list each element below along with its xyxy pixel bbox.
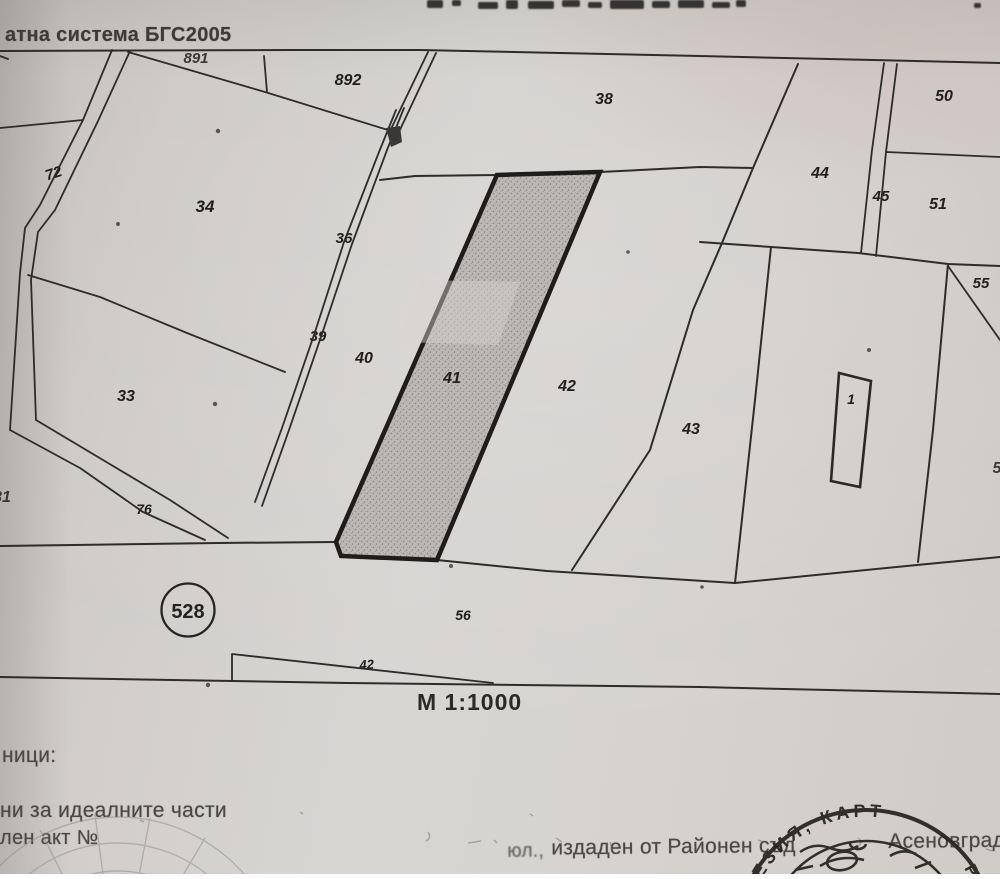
- parcel-label-36: 36: [336, 230, 353, 247]
- parcel-label-72: 72: [43, 163, 65, 185]
- boundary-38-south-west: [380, 175, 497, 180]
- stamp-arc-text: ЕЗИЯ, КАРТ: [748, 801, 886, 874]
- parcel-label-31: 31: [0, 489, 11, 506]
- clipped-top-text-fragments: [427, 0, 981, 9]
- road-56-top-east: [735, 557, 1000, 583]
- road-56-top-mid: [437, 560, 735, 583]
- boundary-38-south-east: [600, 167, 753, 172]
- parcel-label-5: 5: [993, 460, 1000, 477]
- boundary-891-892: [264, 56, 267, 92]
- court-stamp: ЕЗИЯ, КАРТ Р: [736, 801, 996, 874]
- parcel-label-56: 56: [455, 607, 471, 623]
- road-72-east: [31, 51, 130, 420]
- parcel-label-41: 41: [442, 370, 461, 387]
- boundary-left-sliver: [0, 120, 83, 128]
- stamp-inner-scribbles: [795, 842, 931, 872]
- boundary-top-road: [0, 50, 1000, 63]
- highlighted-parcel-41: [336, 172, 600, 560]
- parcel-label-51: 51: [929, 196, 947, 213]
- boundary-892-east-a: [390, 52, 428, 131]
- edge-tick: [0, 56, 8, 59]
- road-72-west: [10, 50, 112, 430]
- stamp-side-letter: Р: [960, 861, 982, 874]
- boundary-34-33: [28, 275, 285, 372]
- scale-label: М 1:1000: [417, 689, 522, 715]
- parcel-label-43: 43: [681, 421, 700, 438]
- parcel-label-34: 34: [196, 197, 215, 216]
- road-45-west: [861, 63, 884, 253]
- faint-left-stamp: [0, 815, 286, 874]
- road-36-west: [255, 110, 396, 502]
- boundary-892-east-b: [398, 53, 436, 134]
- parcel-label-44: 44: [810, 165, 829, 182]
- parcel-label-38: 38: [595, 91, 613, 108]
- road-56-top-west: [0, 542, 336, 546]
- boundary-42-43: [572, 168, 753, 570]
- parcel-label-42: 42: [557, 378, 576, 395]
- road-72-lower-west: [10, 430, 205, 540]
- parcel-label-891: 891: [183, 50, 208, 67]
- road-marker-label: 528: [171, 601, 204, 623]
- boundary-50-51: [886, 152, 1000, 157]
- boundary-44-south: [700, 242, 1000, 266]
- boundary-43-east: [735, 247, 771, 583]
- parcel-label-55: 55: [973, 275, 990, 292]
- boundary-891-34: [128, 52, 388, 130]
- road-72-lower-east: [36, 420, 228, 538]
- parcel-label-50: 50: [935, 88, 953, 105]
- parcel-label-33: 33: [117, 388, 135, 405]
- cadastral-map: 8914536397642: [0, 0, 1000, 874]
- boundary-right-parcel-west: [918, 264, 948, 562]
- parcel-label-892: 892: [335, 72, 362, 89]
- boundary-44-west: [753, 64, 798, 168]
- parcel-label-1: 1: [847, 391, 855, 407]
- parcel-label-40: 40: [354, 350, 373, 367]
- junction-mark: [386, 126, 402, 147]
